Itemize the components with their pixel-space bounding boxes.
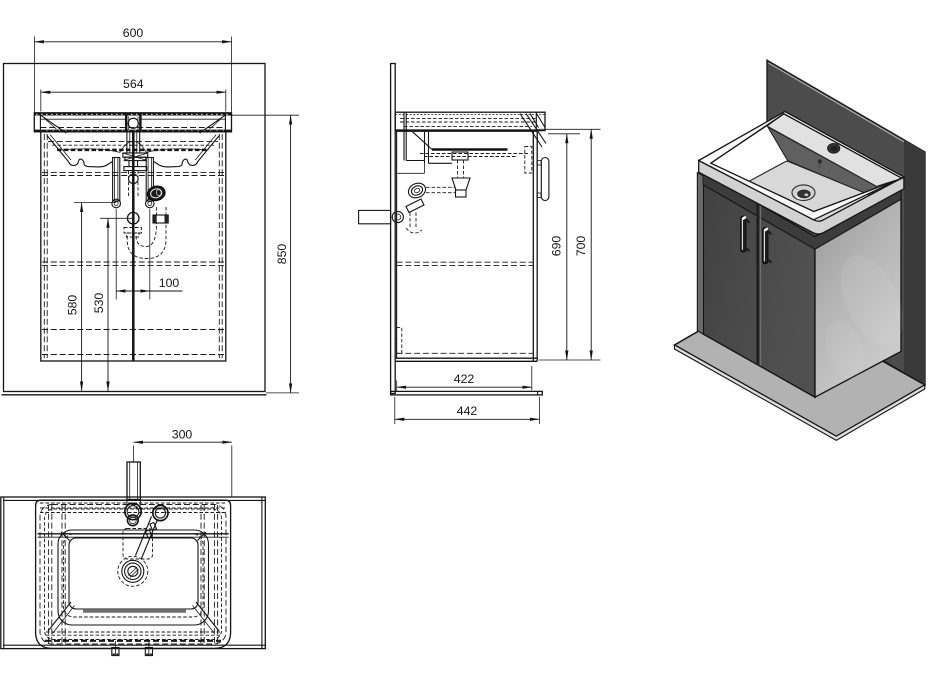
svg-text:530: 530 xyxy=(92,293,106,314)
svg-text:850: 850 xyxy=(275,244,289,265)
svg-text:100: 100 xyxy=(159,276,180,290)
svg-text:690: 690 xyxy=(550,236,564,257)
svg-text:564: 564 xyxy=(123,77,144,91)
svg-text:422: 422 xyxy=(454,372,475,386)
svg-text:700: 700 xyxy=(574,236,588,257)
svg-text:442: 442 xyxy=(457,404,478,418)
svg-text:600: 600 xyxy=(123,26,144,40)
svg-text:300: 300 xyxy=(172,427,193,441)
svg-text:580: 580 xyxy=(66,295,80,316)
